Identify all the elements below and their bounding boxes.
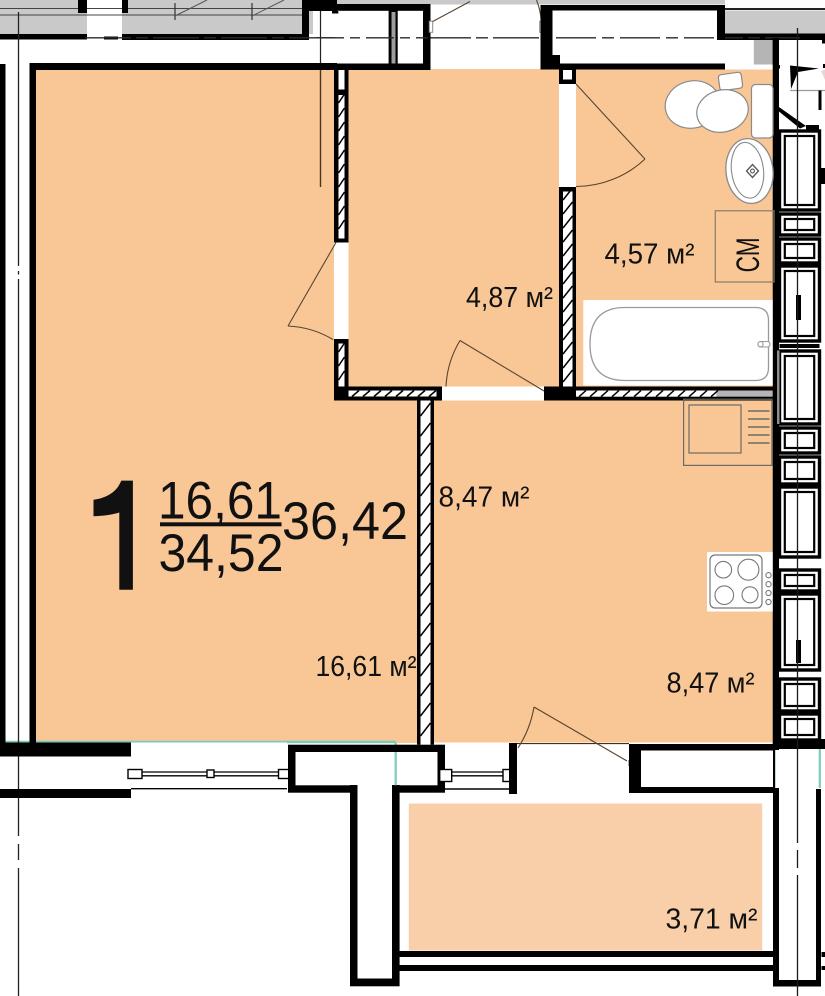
svg-text:8,47 м²: 8,47 м² — [439, 482, 530, 514]
svg-text:16,61 м²: 16,61 м² — [316, 651, 417, 683]
svg-text:8,47 м²: 8,47 м² — [667, 668, 755, 700]
svg-text:4,57 м²: 4,57 м² — [605, 239, 695, 271]
svg-text:16,61: 16,61 — [158, 472, 282, 531]
svg-text:3,71 м²: 3,71 м² — [666, 904, 758, 936]
svg-text:34,52: 34,52 — [159, 524, 284, 583]
svg-text:4,87 м²: 4,87 м² — [466, 282, 553, 314]
svg-text:36,42: 36,42 — [282, 492, 408, 551]
svg-text:СМ: СМ — [730, 237, 766, 272]
